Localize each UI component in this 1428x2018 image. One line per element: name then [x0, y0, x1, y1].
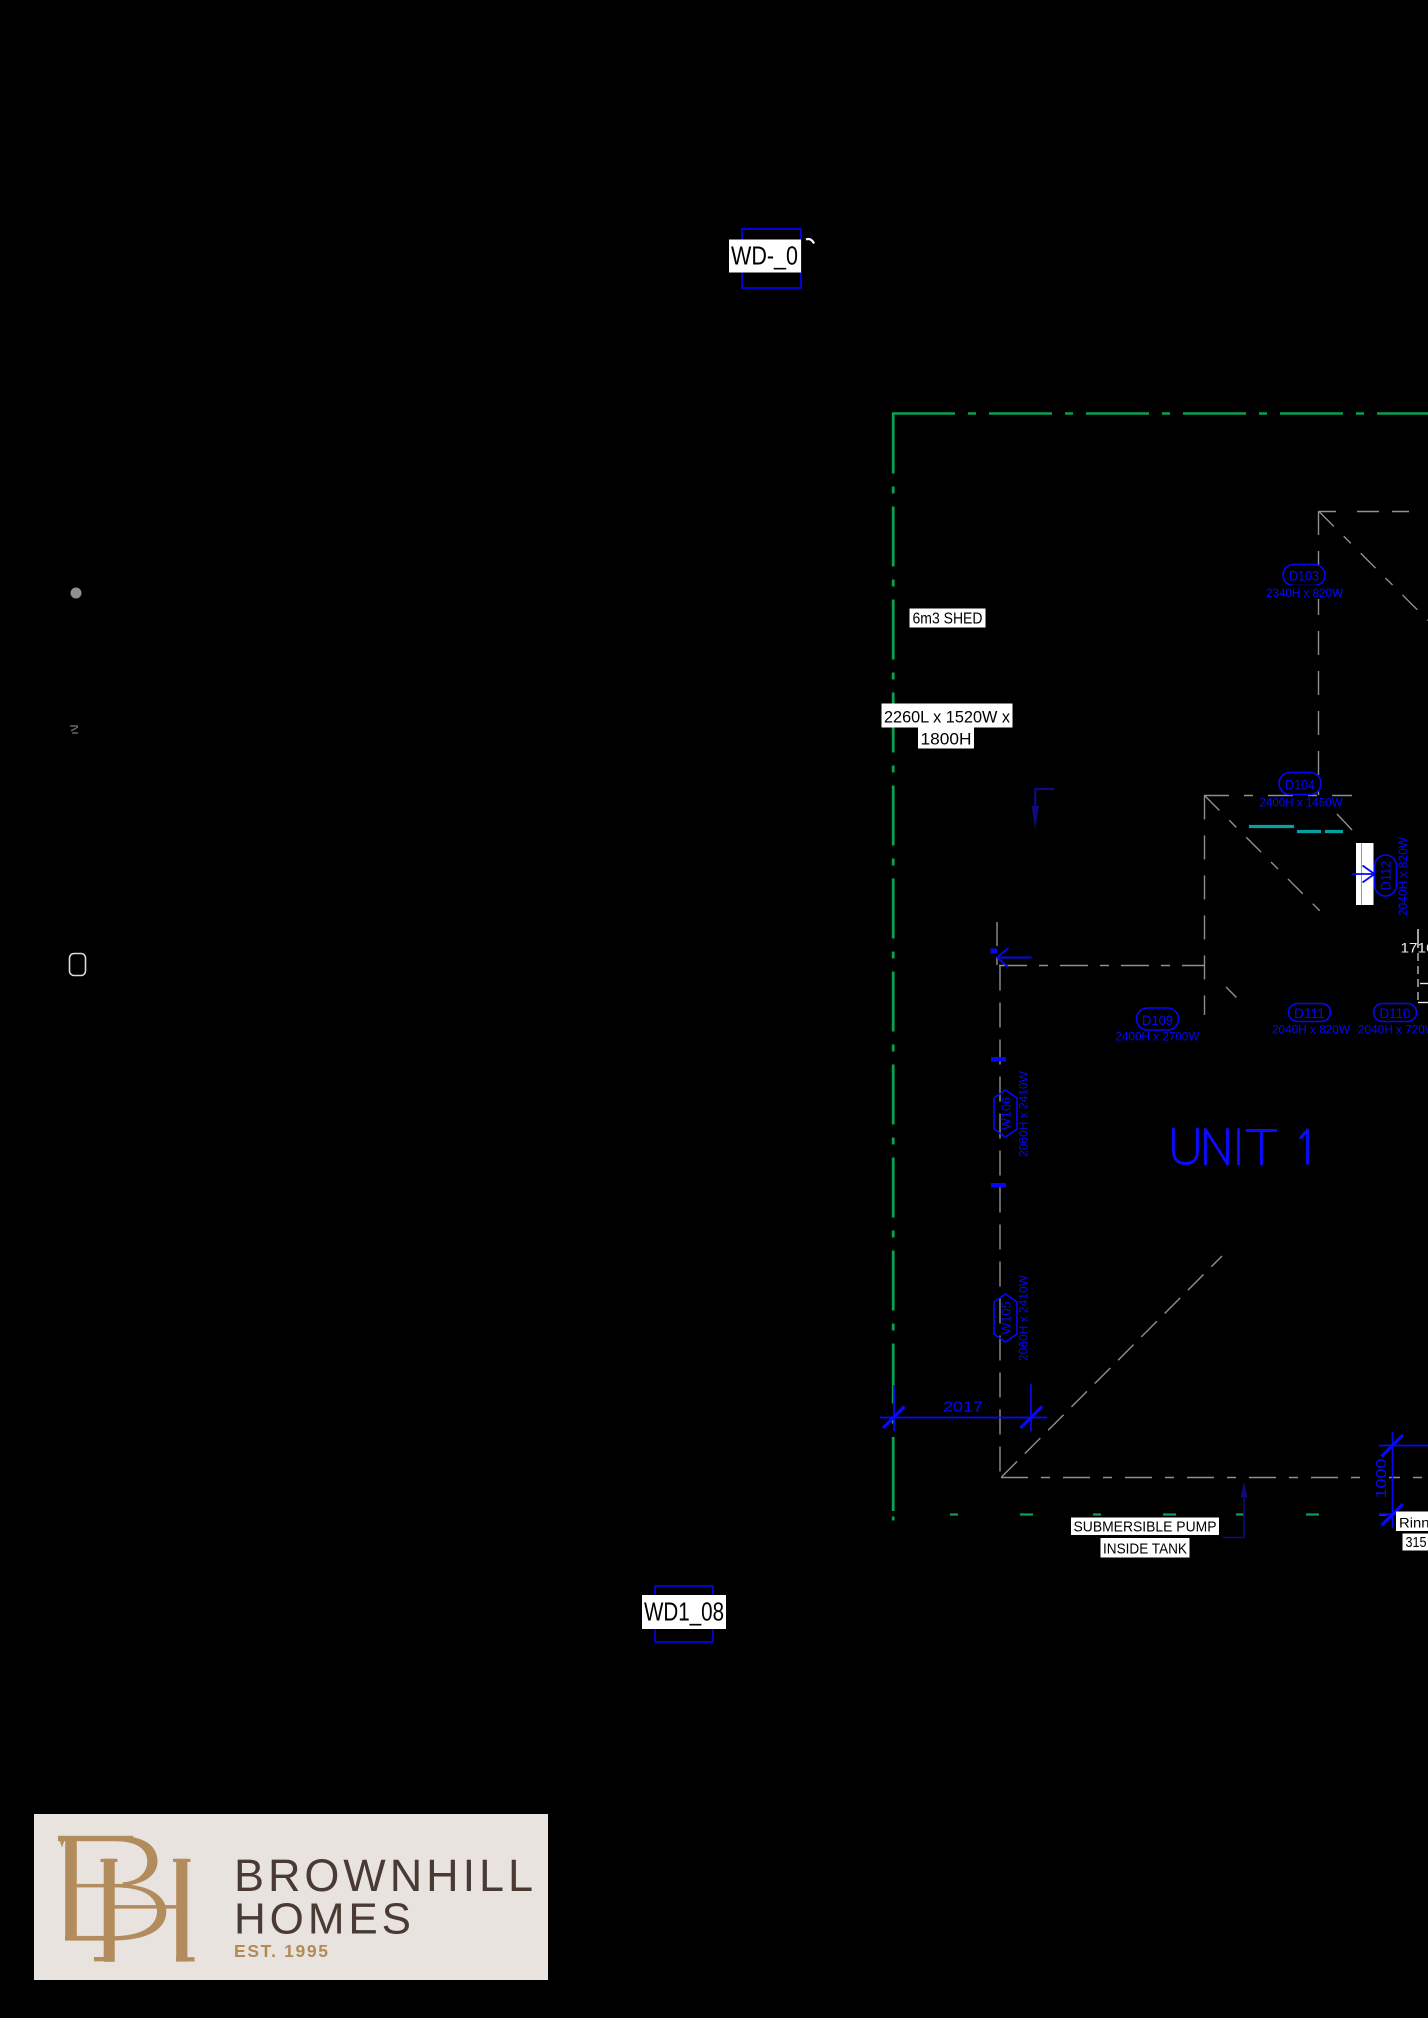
svg-text:1716: 1716: [1401, 940, 1428, 956]
svg-text:D103: D103: [1289, 568, 1319, 584]
svg-text:2040H x 820W: 2040H x 820W: [1272, 1023, 1351, 1037]
svg-text:D112: D112: [1378, 860, 1394, 890]
svg-text:W105: W105: [999, 1302, 1014, 1335]
svg-text:Rinnai: Rinnai: [1399, 1515, 1428, 1531]
svg-text:D111: D111: [1294, 1005, 1325, 1021]
svg-text:2400H x 1450W: 2400H x 1450W: [1260, 796, 1344, 810]
svg-text:6m3 SHED: 6m3 SHED: [913, 611, 983, 628]
svg-text:2040H x 720W: 2040H x 720W: [1358, 1023, 1428, 1037]
svg-text:HOMES: HOMES: [234, 1895, 411, 1944]
svg-text:2260L x 1520W x: 2260L x 1520W x: [884, 708, 1010, 727]
svg-text:BROWNHILL: BROWNHILL: [234, 1850, 533, 1901]
svg-text:2340H x 820W: 2340H x 820W: [1266, 586, 1344, 600]
svg-text:2040H x 820W: 2040H x 820W: [1396, 836, 1410, 916]
svg-text:W106: W106: [999, 1097, 1014, 1130]
svg-text:INSIDE TANK: INSIDE TANK: [1103, 1541, 1187, 1558]
svg-text:2060H x 2410W: 2060H x 2410W: [1017, 1274, 1031, 1361]
svg-text:SUBMERSIBLE PUMP: SUBMERSIBLE PUMP: [1074, 1519, 1217, 1536]
svg-text:D109: D109: [1142, 1012, 1173, 1028]
svg-text:D110: D110: [1380, 1005, 1411, 1021]
svg-text:1000: 1000: [1373, 1459, 1390, 1499]
svg-text:EST. 1995: EST. 1995: [234, 1941, 328, 1961]
svg-text:D104: D104: [1285, 777, 1315, 793]
svg-text:315: 315: [1406, 1534, 1427, 1551]
svg-text:2060H x 2410W: 2060H x 2410W: [1017, 1070, 1031, 1157]
svg-text:WD1_08: WD1_08: [644, 1597, 724, 1627]
svg-text:WD-_0: WD-_0: [731, 241, 798, 271]
svg-text:2400H x 2700W: 2400H x 2700W: [1116, 1030, 1201, 1044]
svg-text:2017: 2017: [943, 1399, 983, 1416]
svg-text:1800H: 1800H: [921, 730, 972, 749]
